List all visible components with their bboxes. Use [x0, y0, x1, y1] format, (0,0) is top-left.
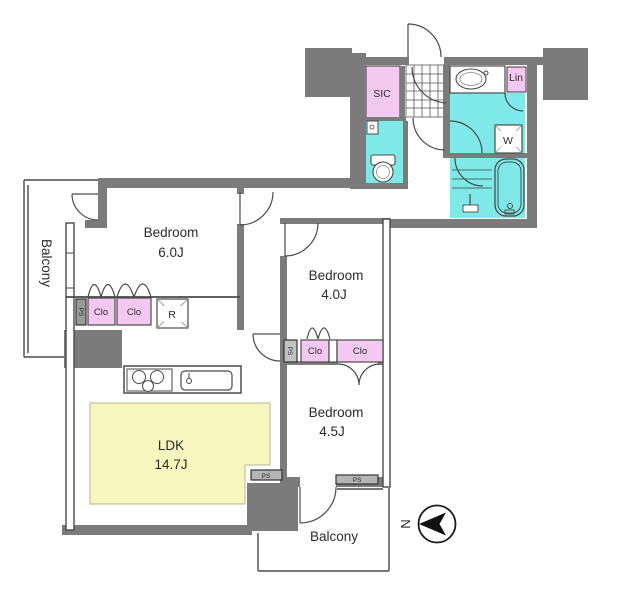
wall-ldk-bottom — [62, 525, 252, 535]
bedroom45-label: Bedroom — [309, 405, 364, 420]
wall-sic-genkan — [400, 66, 405, 117]
wall-upper-bottom — [387, 219, 537, 228]
ldk-area: 14.7J — [154, 457, 187, 472]
window-west — [66, 223, 74, 530]
toilet-corner-sink — [367, 121, 378, 134]
fridge-label: R — [168, 309, 176, 321]
ldk-balcony-door — [300, 487, 336, 523]
compass-north-label: N — [398, 519, 413, 528]
room-fills — [90, 66, 526, 504]
wall-toilet-bottom — [352, 183, 408, 189]
closet-divider — [329, 340, 337, 362]
wall-step — [85, 220, 105, 228]
closet6b-bifold-door — [117, 284, 151, 297]
sic-label: SIC — [373, 88, 391, 100]
washer-label: W — [503, 135, 513, 147]
wall-washroom-bath — [450, 153, 527, 158]
closet4-bifold-door — [307, 328, 330, 339]
ldk-label: LDK — [158, 438, 184, 453]
closet6a-label: Clo — [94, 307, 108, 318]
bedroom4-label: Bedroom — [309, 268, 364, 283]
wall-toilet-right — [403, 121, 408, 183]
window-east — [383, 219, 390, 487]
closet6b-label: Clo — [127, 307, 141, 318]
floor-plan: N Balcony Bedroom 6.0J Bedroom 4.0J Bedr… — [0, 0, 619, 607]
ps-label-4: PS — [353, 477, 362, 484]
hall-door — [413, 118, 445, 150]
balcony-bottom-label: Balcony — [310, 529, 358, 544]
wall-bedroom4-top — [280, 218, 390, 224]
bedroom4-area: 4.0J — [321, 287, 347, 302]
wall-entry-left — [350, 53, 366, 189]
wall-right — [527, 62, 537, 228]
ps-label-3: PS — [262, 473, 271, 480]
compass: N — [398, 506, 456, 543]
bedroom45-door — [338, 364, 380, 385]
kitchen-counter — [124, 366, 241, 393]
wall-block-top-left — [305, 48, 352, 97]
bedroom4-door — [285, 223, 318, 256]
ps-label-1: PS — [77, 308, 84, 317]
ldk-floor — [90, 403, 270, 504]
wall-bedroom6-right — [237, 224, 244, 330]
bedroom6-area: 6.0J — [158, 245, 184, 260]
wall-entry-top-a — [352, 57, 409, 65]
wash-basin — [450, 66, 505, 93]
linen-label: Lin — [509, 72, 523, 84]
bedroom6-door — [240, 192, 273, 225]
entry-door — [408, 24, 441, 57]
wall-main-top — [98, 178, 354, 188]
hallway-ldk-door — [253, 334, 280, 361]
bathtub — [495, 159, 524, 216]
wall-genkan-washroom — [443, 65, 450, 158]
ps-label-2: PS — [286, 347, 293, 356]
closet45-label: Clo — [353, 346, 367, 357]
bedroom6-label: Bedroom — [144, 225, 199, 240]
wall-block-top-right — [543, 48, 588, 100]
bedroom45-area: 4.5J — [319, 424, 345, 439]
balcony-left-label: Balcony — [39, 239, 54, 287]
wall-sic-toilet — [366, 117, 406, 121]
floor-plan-canvas: N Balcony Bedroom 6.0J Bedroom 4.0J Bedr… — [0, 0, 619, 607]
wall-block-bottom-right — [247, 483, 298, 531]
bedroom6-balcony-door — [72, 194, 98, 220]
closet6a-bifold-door — [88, 285, 115, 298]
closet4-label: Clo — [308, 346, 322, 357]
wall-bedroom4-left — [280, 256, 287, 340]
